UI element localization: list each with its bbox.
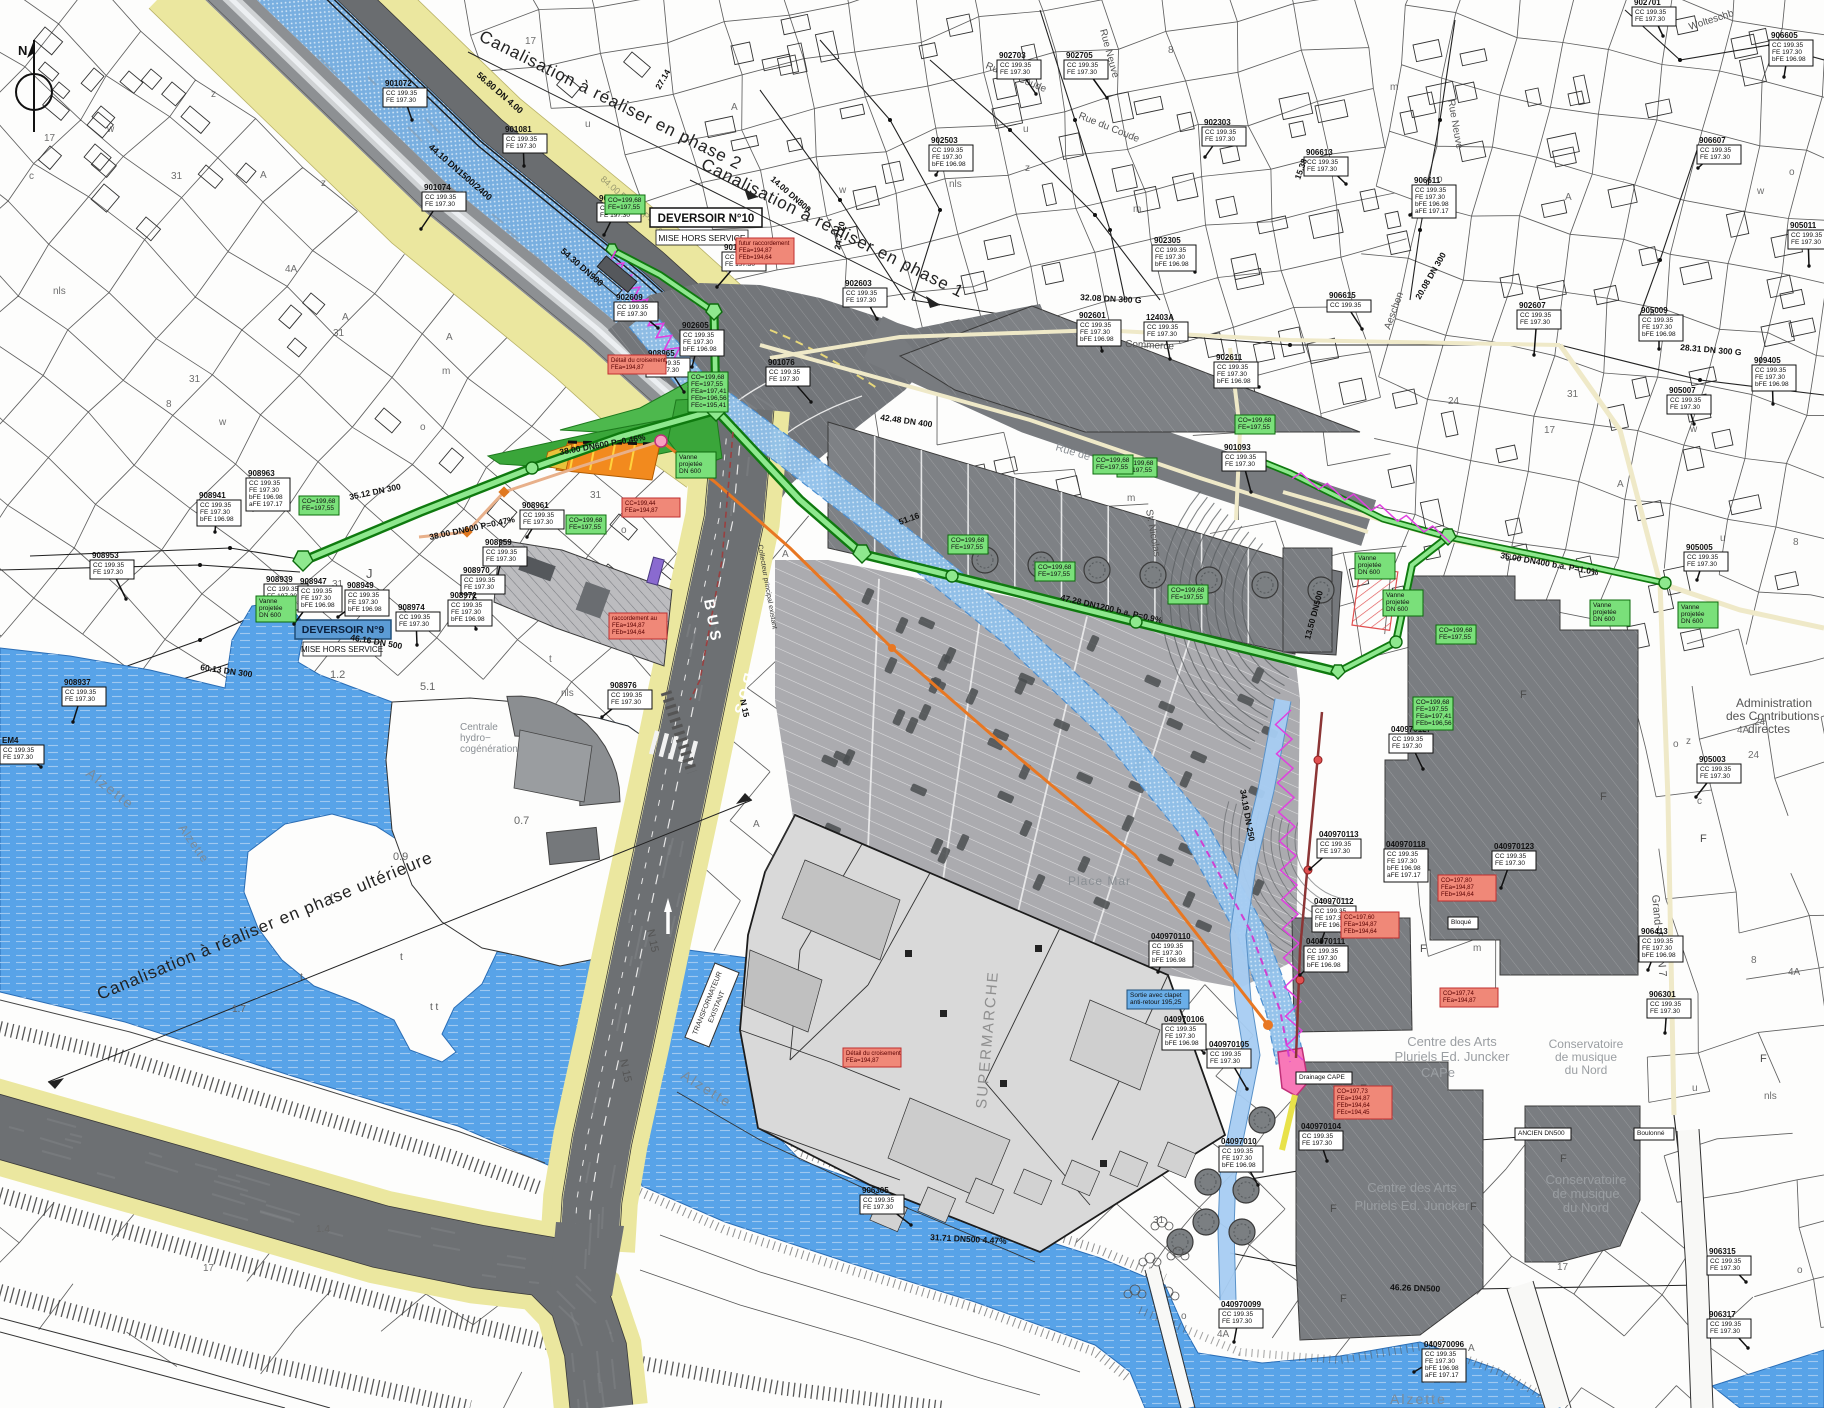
- svg-text:bFE 196.98: bFE 196.98: [1307, 962, 1341, 969]
- svg-text:w: w: [1689, 424, 1698, 435]
- svg-text:908937: 908937: [64, 678, 91, 687]
- svg-text:FE 197.30: FE 197.30: [617, 311, 647, 318]
- svg-text:CC 199.35: CC 199.35: [267, 586, 298, 593]
- svg-text:906317: 906317: [1709, 1310, 1736, 1319]
- svg-text:040970105: 040970105: [1209, 1040, 1250, 1049]
- svg-text:bFE 196.98: bFE 196.98: [683, 346, 717, 353]
- svg-text:CC 199.35: CC 199.35: [1222, 1311, 1253, 1318]
- svg-text:902601: 902601: [1079, 311, 1106, 320]
- svg-text:FEa=194,87: FEa=194,87: [612, 623, 646, 629]
- svg-text:CC=199,44: CC=199,44: [625, 501, 656, 507]
- svg-text:CC 199.35: CC 199.35: [1330, 302, 1361, 309]
- svg-text:DN 600: DN 600: [1593, 616, 1615, 623]
- svg-text:bFE 196.98: bFE 196.98: [451, 616, 485, 623]
- svg-text:EM4: EM4: [2, 736, 19, 745]
- svg-text:FE 197.30: FE 197.30: [1067, 69, 1097, 76]
- svg-text:CC 199.35: CC 199.35: [1415, 187, 1446, 194]
- svg-text:CC 199.35: CC 199.35: [1307, 948, 1338, 955]
- svg-text:FE 197.30: FE 197.30: [932, 154, 962, 161]
- svg-text:FEa=194,87: FEa=194,87: [625, 508, 659, 514]
- svg-text:8: 8: [1168, 45, 1174, 56]
- svg-text:F: F: [1760, 1053, 1767, 1065]
- svg-text:906315: 906315: [1709, 1247, 1736, 1256]
- svg-text:CO=199,68: CO=199,68: [608, 197, 642, 204]
- svg-text:DN 600: DN 600: [679, 468, 701, 475]
- svg-text:DEVERSOIR N°9: DEVERSOIR N°9: [302, 624, 385, 636]
- svg-text:FE 197.30: FE 197.30: [523, 519, 553, 526]
- svg-text:FEa=194,87: FEa=194,87: [846, 1058, 880, 1064]
- svg-text:CO=199,68: CO=199,68: [1238, 417, 1272, 424]
- svg-text:FE 197.30: FE 197.30: [1205, 136, 1235, 143]
- svg-text:Drainage CAPE: Drainage CAPE: [1299, 1074, 1346, 1081]
- svg-text:CC 199.35: CC 199.35: [1080, 322, 1111, 329]
- svg-text:906611: 906611: [1414, 176, 1441, 185]
- svg-text:040970099: 040970099: [1221, 1300, 1262, 1309]
- svg-text:FE 197.30: FE 197.30: [1415, 194, 1445, 201]
- svg-text:o: o: [1181, 1311, 1187, 1322]
- svg-text:CC 199.35: CC 199.35: [1772, 42, 1803, 49]
- svg-text:31: 31: [171, 171, 183, 182]
- svg-text:040970123: 040970123: [1494, 842, 1535, 851]
- svg-text:FE=197,55: FE=197,55: [691, 381, 723, 388]
- svg-text:CC 199.35: CC 199.35: [486, 549, 517, 556]
- svg-text:FE 197.30: FE 197.30: [1755, 374, 1785, 381]
- svg-text:FE 197.30: FE 197.30: [1635, 16, 1665, 23]
- svg-text:CC 199.35: CC 199.35: [200, 502, 231, 509]
- svg-text:FE 197.30: FE 197.30: [769, 376, 799, 383]
- svg-text:CC=197,60: CC=197,60: [1344, 915, 1375, 921]
- svg-text:17: 17: [203, 1263, 215, 1274]
- svg-text:FE 197.30: FE 197.30: [1700, 154, 1730, 161]
- svg-text:FE 197.30: FE 197.30: [1302, 1140, 1332, 1147]
- svg-text:FE 197.30: FE 197.30: [1320, 848, 1350, 855]
- svg-text:040970112: 040970112: [1314, 897, 1354, 906]
- svg-text:A: A: [446, 332, 453, 343]
- svg-text:z: z: [321, 178, 326, 189]
- svg-text:FE 197.30: FE 197.30: [1307, 166, 1337, 173]
- svg-text:FE 197.30: FE 197.30: [1710, 1328, 1740, 1335]
- svg-text:CO=199,68: CO=199,68: [1416, 699, 1450, 706]
- svg-text:FE 197.30: FE 197.30: [464, 584, 494, 591]
- svg-text:z: z: [211, 89, 216, 100]
- svg-text:CC 199.35: CC 199.35: [1700, 147, 1731, 154]
- svg-text:CC 199.35: CC 199.35: [301, 588, 332, 595]
- svg-text:CC 199.35: CC 199.35: [1520, 312, 1551, 319]
- svg-text:anti-retour 195,25: anti-retour 195,25: [1130, 999, 1182, 1006]
- svg-text:902605: 902605: [682, 321, 709, 330]
- svg-text:FEb=194,64: FEb=194,64: [1337, 1103, 1371, 1109]
- svg-text:CC 199.35: CC 199.35: [3, 747, 34, 754]
- svg-text:FE 197.30: FE 197.30: [1710, 1265, 1740, 1272]
- svg-text:m: m: [1390, 82, 1398, 93]
- svg-text:Pluriels Ed. Juncker: Pluriels Ed. Juncker: [1355, 1198, 1471, 1213]
- svg-text:A: A: [782, 549, 789, 560]
- svg-text:CC 199.35: CC 199.35: [1392, 736, 1423, 743]
- svg-text:FE 197.30: FE 197.30: [1080, 329, 1110, 336]
- svg-text:J: J: [366, 566, 373, 581]
- svg-text:908959: 908959: [485, 538, 512, 547]
- svg-text:040970113: 040970113: [1319, 830, 1359, 839]
- svg-text:FE=197,55: FE=197,55: [1038, 571, 1070, 578]
- svg-text:des Contributions: des Contributions: [1726, 709, 1819, 723]
- svg-text:directes: directes: [1748, 722, 1790, 736]
- svg-text:FE 197.30: FE 197.30: [1670, 404, 1700, 411]
- svg-text:CC 199.35: CC 199.35: [1687, 554, 1718, 561]
- svg-text:CC 199.35: CC 199.35: [425, 194, 456, 201]
- svg-text:o: o: [1797, 1265, 1803, 1276]
- svg-text:Sortie avec clapet: Sortie avec clapet: [1130, 992, 1182, 999]
- svg-text:FE 197.30: FE 197.30: [1222, 1155, 1252, 1162]
- svg-text:040970110: 040970110: [1151, 932, 1191, 941]
- svg-text:1.2: 1.2: [330, 669, 345, 681]
- svg-text:MISE HORS SERVICE: MISE HORS SERVICE: [301, 645, 383, 654]
- svg-text:CC 199.35: CC 199.35: [1000, 62, 1031, 69]
- svg-text:FE=197,55: FE=197,55: [302, 505, 334, 512]
- svg-text:bFE 196.98: bFE 196.98: [1772, 56, 1806, 63]
- svg-text:Vanne: Vanne: [1358, 555, 1377, 562]
- svg-text:906305: 906305: [862, 1186, 889, 1195]
- svg-text:CC 199.35: CC 199.35: [1222, 1148, 1253, 1155]
- svg-text:908953: 908953: [92, 551, 119, 560]
- svg-text:A: A: [1617, 479, 1624, 490]
- svg-text:902603: 902603: [845, 279, 872, 288]
- svg-text:CO=199,68: CO=199,68: [1439, 627, 1473, 634]
- svg-text:0.7: 0.7: [514, 815, 529, 827]
- svg-text:905011: 905011: [1790, 221, 1817, 230]
- svg-text:de musique: de musique: [1555, 1050, 1617, 1064]
- svg-text:CC 199.35: CC 199.35: [1425, 1351, 1456, 1358]
- svg-text:aFE 197.17: aFE 197.17: [249, 501, 283, 508]
- svg-text:906605: 906605: [1771, 31, 1798, 40]
- svg-text:31: 31: [333, 328, 345, 339]
- svg-text:CC 199.35: CC 199.35: [1642, 317, 1673, 324]
- svg-text:902611: 902611: [1216, 353, 1243, 362]
- svg-text:909405: 909405: [1754, 356, 1781, 365]
- svg-text:CC 199.35: CC 199.35: [1755, 367, 1786, 374]
- svg-text:CAPe: CAPe: [1421, 1065, 1455, 1080]
- svg-text:46.26 DN500: 46.26 DN500: [1390, 1282, 1441, 1294]
- svg-text:Vanne: Vanne: [1681, 604, 1700, 611]
- svg-text:CC 199.35: CC 199.35: [523, 512, 554, 519]
- svg-text:FEb=196,56: FEb=196,56: [691, 395, 727, 402]
- svg-text:FE 197.30: FE 197.30: [1222, 1318, 1252, 1325]
- svg-text:F: F: [1470, 1201, 1477, 1213]
- svg-text:Centre des Arts: Centre des Arts: [1367, 1180, 1457, 1195]
- svg-text:bFE 196.98: bFE 196.98: [1080, 336, 1114, 343]
- svg-text:bFE 196.98: bFE 196.98: [1217, 378, 1251, 385]
- svg-text:CC 199.35: CC 199.35: [1387, 851, 1418, 858]
- svg-text:CO=197,80: CO=197,80: [1441, 878, 1473, 884]
- svg-text:906613: 906613: [1306, 148, 1333, 157]
- svg-text:CC 199.35: CC 199.35: [93, 562, 124, 569]
- svg-text:A: A: [731, 102, 738, 113]
- svg-text:Boulonné: Boulonné: [1637, 1130, 1665, 1137]
- svg-text:12403A: 12403A: [1146, 313, 1174, 322]
- svg-text:FE 197.30: FE 197.30: [1165, 1033, 1195, 1040]
- svg-text:17: 17: [1544, 425, 1556, 436]
- svg-text:CC 199.35: CC 199.35: [451, 602, 482, 609]
- svg-text:aFE 197.17: aFE 197.17: [1415, 208, 1449, 215]
- svg-text:FE 197.30: FE 197.30: [611, 699, 641, 706]
- svg-text:FE 197.30: FE 197.30: [1217, 371, 1247, 378]
- svg-text:z: z: [1025, 163, 1030, 174]
- svg-text:FE 197.30: FE 197.30: [1152, 950, 1182, 957]
- svg-text:CC 199.35: CC 199.35: [65, 689, 96, 696]
- svg-text:CC 199.35: CC 199.35: [617, 304, 648, 311]
- svg-text:FE=197,55: FE=197,55: [1238, 424, 1270, 431]
- svg-text:u: u: [585, 119, 591, 130]
- svg-text:CC 199.35: CC 199.35: [386, 90, 417, 97]
- svg-text:CC 199.35: CC 199.35: [399, 614, 430, 621]
- svg-text:FEa=194,87: FEa=194,87: [1443, 998, 1477, 1004]
- svg-text:CC 199.35: CC 199.35: [1067, 62, 1098, 69]
- svg-text:bFE 196.98: bFE 196.98: [1755, 381, 1789, 388]
- svg-text:projetée: projetée: [259, 605, 283, 612]
- svg-text:040970104: 040970104: [1301, 1122, 1342, 1131]
- svg-text:FE 197.30: FE 197.30: [1700, 773, 1730, 780]
- svg-text:908976: 908976: [610, 681, 637, 690]
- svg-text:projetée: projetée: [1593, 609, 1617, 616]
- svg-text:4A: 4A: [285, 264, 298, 275]
- svg-text:908970: 908970: [463, 566, 490, 575]
- svg-text:CC 199.35: CC 199.35: [1225, 454, 1256, 461]
- svg-text:8: 8: [166, 399, 172, 410]
- svg-text:DN 600: DN 600: [1386, 606, 1408, 613]
- svg-text:040970118: 040970118: [1386, 840, 1426, 849]
- svg-text:Détail du croisement: Détail du croisement: [846, 1051, 901, 1057]
- svg-text:FE 197.30: FE 197.30: [863, 1204, 893, 1211]
- svg-text:FEc=195,41: FEc=195,41: [691, 402, 727, 409]
- svg-text:CC 199.35: CC 199.35: [1642, 938, 1673, 945]
- svg-text:DEVERSOIR N°10: DEVERSOIR N°10: [658, 213, 755, 225]
- svg-text:CC 199.35: CC 199.35: [1217, 364, 1248, 371]
- svg-text:FE 197.30: FE 197.30: [425, 201, 455, 208]
- svg-text:24: 24: [1448, 396, 1460, 407]
- svg-text:902503: 902503: [931, 136, 958, 145]
- svg-text:902607: 902607: [1519, 301, 1546, 310]
- svg-text:FE 197.30: FE 197.30: [506, 143, 536, 150]
- svg-text:31: 31: [590, 490, 602, 501]
- svg-text:bFE 196.98: bFE 196.98: [1155, 261, 1189, 268]
- svg-text:FEa=197,41: FEa=197,41: [1416, 713, 1452, 720]
- svg-text:F: F: [1560, 1153, 1567, 1165]
- svg-text:CC 199.35: CC 199.35: [348, 592, 379, 599]
- svg-text:CO=199,68: CO=199,68: [691, 374, 725, 381]
- svg-text:FEc=194,45: FEc=194,45: [1337, 1110, 1370, 1116]
- svg-text:F: F: [1700, 833, 1707, 845]
- svg-text:u: u: [1720, 533, 1726, 544]
- svg-text:FE 197.30: FE 197.30: [386, 97, 416, 104]
- svg-text:o: o: [420, 422, 426, 433]
- svg-text:CC 199.35: CC 199.35: [1210, 1051, 1241, 1058]
- svg-text:0.9: 0.9: [393, 851, 408, 863]
- svg-text:FE=197,55: FE=197,55: [1096, 464, 1128, 471]
- svg-text:908963: 908963: [248, 469, 275, 478]
- svg-text:FEa=194,87: FEa=194,87: [739, 248, 773, 254]
- svg-text:17: 17: [44, 133, 56, 144]
- svg-text:040970106: 040970106: [1164, 1015, 1205, 1024]
- svg-text:CC 199.35: CC 199.35: [1302, 1133, 1333, 1140]
- svg-text:bFE 196.98: bFE 196.98: [1642, 952, 1676, 959]
- svg-text:CO=199,68: CO=199,68: [1038, 564, 1072, 571]
- svg-text:8: 8: [1751, 955, 1757, 966]
- svg-text:m: m: [442, 366, 450, 377]
- svg-text:Alzette: Alzette: [1390, 1391, 1447, 1407]
- svg-text:FE 197.30: FE 197.30: [1155, 254, 1185, 261]
- svg-text:906301: 906301: [1649, 990, 1676, 999]
- svg-text:FEb=194,64: FEb=194,64: [739, 255, 773, 261]
- svg-text:CC 199.35: CC 199.35: [1495, 853, 1526, 860]
- svg-text:905005: 905005: [1686, 543, 1713, 552]
- svg-text:FEa=194,87: FEa=194,87: [1337, 1096, 1371, 1102]
- svg-text:04097010: 04097010: [1221, 1137, 1257, 1146]
- svg-text:908974: 908974: [398, 603, 425, 612]
- svg-text:hydro−: hydro−: [460, 733, 491, 744]
- svg-text:FE 197.30: FE 197.30: [1687, 561, 1717, 568]
- svg-text:F: F: [1420, 943, 1427, 955]
- svg-text:FE 197.30: FE 197.30: [846, 297, 876, 304]
- svg-text:bFE 196.98: bFE 196.98: [932, 161, 966, 168]
- svg-text:901076: 901076: [768, 358, 795, 367]
- svg-text:CC 199.35: CC 199.35: [249, 480, 280, 487]
- svg-text:bFE 196.98: bFE 196.98: [1387, 865, 1421, 872]
- svg-text:Vanne: Vanne: [679, 454, 698, 461]
- svg-text:FE 197.30: FE 197.30: [249, 487, 279, 494]
- svg-text:FEb=194,64: FEb=194,64: [1441, 892, 1475, 898]
- svg-text:CO=199,68: CO=199,68: [1096, 457, 1130, 464]
- svg-text:CO=199,68: CO=199,68: [1171, 587, 1205, 594]
- svg-text:FE 197.30: FE 197.30: [1425, 1358, 1455, 1365]
- svg-text:w: w: [1756, 186, 1765, 197]
- svg-text:futur raccordement: futur raccordement: [739, 241, 790, 247]
- svg-text:bFE 196.98: bFE 196.98: [1642, 331, 1676, 338]
- svg-text:Bloqué: Bloqué: [1451, 919, 1472, 926]
- svg-text:902609: 902609: [616, 293, 643, 302]
- svg-text:o: o: [1789, 167, 1795, 178]
- svg-text:CC 199.35: CC 199.35: [1791, 232, 1822, 239]
- svg-text:CC 199.35: CC 199.35: [1700, 766, 1731, 773]
- svg-text:Détail du croisement: Détail du croisement: [611, 358, 666, 364]
- svg-text:908939: 908939: [266, 575, 293, 584]
- svg-text:905007: 905007: [1669, 386, 1696, 395]
- svg-text:A: A: [1468, 1343, 1475, 1354]
- svg-text:u: u: [1023, 124, 1029, 135]
- svg-text:CC 199.35: CC 199.35: [1635, 9, 1666, 16]
- svg-text:902305: 902305: [1154, 236, 1181, 245]
- svg-text:FE=197,55: FE=197,55: [951, 544, 983, 551]
- svg-text:bFE 196.98: bFE 196.98: [1222, 1162, 1256, 1169]
- svg-text:CO=197,74: CO=197,74: [1443, 991, 1475, 997]
- svg-text:w: w: [218, 417, 227, 428]
- svg-text:F: F: [1340, 1293, 1347, 1305]
- svg-text:u: u: [1692, 1083, 1698, 1094]
- svg-text:5.1: 5.1: [420, 681, 435, 693]
- svg-text:040970111: 040970111: [1306, 937, 1346, 946]
- svg-text:FEb=196,56: FEb=196,56: [1416, 720, 1452, 727]
- svg-text:CO=199,68: CO=199,68: [951, 537, 985, 544]
- svg-text:17: 17: [1557, 1262, 1569, 1273]
- svg-text:bFE 196.98: bFE 196.98: [348, 606, 382, 613]
- svg-text:908947: 908947: [300, 577, 327, 586]
- svg-text:FE 197.30: FE 197.30: [3, 754, 33, 761]
- svg-text:CC 199.35: CC 199.35: [1155, 247, 1186, 254]
- svg-text:FEb=194,64: FEb=194,64: [612, 630, 646, 636]
- svg-text:31: 31: [1567, 389, 1579, 400]
- svg-text:DN 600: DN 600: [1358, 569, 1380, 576]
- svg-text:908941: 908941: [199, 491, 226, 500]
- svg-text:aFE 197.17: aFE 197.17: [1425, 1372, 1459, 1379]
- svg-text:908961: 908961: [522, 501, 549, 510]
- svg-text:CC 199.35: CC 199.35: [1165, 1026, 1196, 1033]
- svg-text:m: m: [1473, 943, 1481, 954]
- svg-text:t: t: [549, 654, 552, 665]
- svg-text:905003: 905003: [1699, 755, 1726, 764]
- svg-text:FE 197.30: FE 197.30: [1000, 69, 1030, 76]
- svg-text:CC 199.35: CC 199.35: [1670, 397, 1701, 404]
- svg-text:c: c: [29, 171, 34, 182]
- svg-text:905009: 905009: [1641, 306, 1668, 315]
- svg-text:040970096: 040970096: [1424, 1340, 1465, 1349]
- svg-text:FEa=194,87: FEa=194,87: [611, 365, 645, 371]
- svg-text:901074: 901074: [424, 183, 451, 192]
- svg-text:31: 31: [189, 374, 201, 385]
- svg-text:FE 197.30: FE 197.30: [1642, 324, 1672, 331]
- svg-text:FE 197.30: FE 197.30: [301, 595, 331, 602]
- svg-text:17: 17: [525, 36, 537, 47]
- svg-text:raccordement au: raccordement au: [612, 616, 657, 622]
- svg-text:A: A: [753, 819, 760, 830]
- svg-text:bFE 196.98: bFE 196.98: [301, 602, 335, 609]
- svg-text:Conservatoire: Conservatoire: [1546, 1172, 1627, 1187]
- svg-text:CC 199.35: CC 199.35: [683, 332, 714, 339]
- svg-text:o: o: [1673, 739, 1679, 750]
- svg-text:projetée: projetée: [1358, 562, 1382, 569]
- svg-text:ANCIEN DN500: ANCIEN DN500: [1518, 1130, 1565, 1137]
- svg-text:FE=197,55: FE=197,55: [1439, 634, 1471, 641]
- svg-text:F: F: [1520, 689, 1527, 701]
- svg-text:F: F: [1600, 791, 1607, 803]
- svg-text:FEa=194,87: FEa=194,87: [1344, 922, 1378, 928]
- svg-text:FE 197.30: FE 197.30: [399, 621, 429, 628]
- svg-text:CC 199.35: CC 199.35: [1205, 129, 1236, 136]
- svg-text:901093: 901093: [1224, 443, 1251, 452]
- svg-text:908972: 908972: [450, 591, 477, 600]
- svg-text:CC 199.35: CC 199.35: [769, 369, 800, 376]
- svg-text:bFE 196.98: bFE 196.98: [1152, 957, 1186, 964]
- svg-text:CC 199.35: CC 199.35: [846, 290, 877, 297]
- svg-text:c: c: [1697, 796, 1702, 807]
- svg-text:t t: t t: [430, 1002, 439, 1013]
- svg-text:DN 600: DN 600: [1681, 618, 1703, 625]
- svg-text:FE=197,55: FE=197,55: [569, 524, 601, 531]
- svg-text:CC 199.35: CC 199.35: [464, 577, 495, 584]
- svg-text:FEa=197,41: FEa=197,41: [691, 388, 727, 395]
- svg-text:MISE HORS SERVICE: MISE HORS SERVICE: [658, 233, 746, 243]
- svg-text:projetée: projetée: [1386, 599, 1410, 606]
- svg-text:1.7: 1.7: [232, 1004, 246, 1015]
- svg-text:902703: 902703: [999, 51, 1026, 60]
- svg-text:Place Mar: Place Mar: [1068, 874, 1131, 888]
- svg-text:A: A: [260, 170, 267, 181]
- svg-text:FE 197.30: FE 197.30: [1791, 239, 1821, 246]
- svg-text:projetée: projetée: [1681, 611, 1705, 618]
- svg-text:CO=199,68: CO=199,68: [302, 498, 336, 505]
- svg-text:CC 199.35: CC 199.35: [932, 147, 963, 154]
- svg-text:901072: 901072: [385, 79, 412, 88]
- svg-text:906607: 906607: [1699, 136, 1726, 145]
- svg-text:902701: 902701: [1634, 0, 1661, 7]
- svg-text:Conservatoire: Conservatoire: [1549, 1037, 1624, 1051]
